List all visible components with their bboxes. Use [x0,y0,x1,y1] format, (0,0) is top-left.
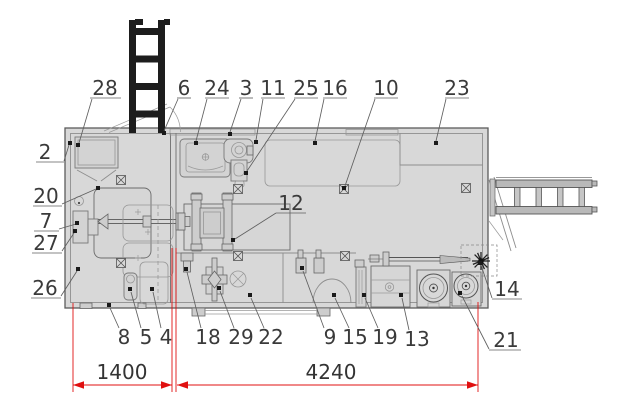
callout-label-25: 25 [293,76,318,100]
callout-dot [96,186,100,190]
callout-dot [128,287,132,291]
crossed-box-icon [462,184,471,193]
crossed-box-icon [341,252,350,261]
crossed-box-icon [117,176,126,185]
callout-dot [228,132,232,136]
callout-label-14: 14 [494,277,519,301]
callout-label-23: 23 [444,76,469,100]
crossed-box-icon [234,252,243,261]
callout-dot [162,131,166,135]
roof-ladder [129,19,170,133]
callout-label-27: 27 [33,231,58,255]
callout-dot [254,140,258,144]
dimension-value: 4240 [306,360,357,384]
callout-label-19: 19 [372,325,397,349]
callout-dot [75,221,79,225]
dimension-value: 1400 [97,360,148,384]
callout-dot [458,291,462,295]
fire-extinguisher [124,273,137,300]
crossed-box-icon [234,185,243,194]
callout-dot [76,143,80,147]
callout-label-26: 26 [32,276,57,300]
callout-dot [150,287,154,291]
callout-label-3: 3 [240,76,253,100]
callout-dot [399,293,403,297]
callout-dot [76,267,80,271]
callout-label-18: 18 [195,325,220,349]
callout-label-6: 6 [178,76,191,100]
callout-dot [313,141,317,145]
callout-label-13: 13 [404,327,429,351]
callout-dot [244,171,248,175]
callout-label-15: 15 [342,325,367,349]
callout-label-7: 7 [40,209,53,233]
callout-dot [332,293,336,297]
callout-label-21: 21 [493,328,518,352]
callout-label-29: 29 [228,325,253,349]
drawer-cabinet [371,266,410,307]
dimension-arrow-right [467,381,478,389]
callout-dot [68,141,72,145]
callout-dot [342,186,346,190]
callout-label-11: 11 [260,76,285,100]
callout-dot [217,286,221,290]
callout-label-8: 8 [118,325,131,349]
callout-dot [478,261,482,265]
callout-dot [248,293,252,297]
floor-plan-canvas: 14004240 2286243112516102320727261214218… [0,0,630,420]
grinder-machine [417,270,450,307]
callout-label-12: 12 [278,191,303,215]
dimension-arrow-left [177,381,188,389]
callout-label-28: 28 [92,76,117,100]
access-ladder [490,178,597,217]
crossed-box-icon [117,259,126,268]
callout-dot [107,303,111,307]
callout-dot [362,293,366,297]
compressor-machine [452,272,481,306]
dimension-arrow-right [161,381,172,389]
callout-dot [194,141,198,145]
callout-dot [184,267,188,271]
callout-label-20: 20 [33,184,58,208]
callout-dot [434,141,438,145]
callout-label-2: 2 [39,140,52,164]
callout-dot [300,266,304,270]
callout-label-22: 22 [258,325,283,349]
callout-leader [230,99,241,132]
callout-label-24: 24 [204,76,229,100]
callout-label-9: 9 [324,325,337,349]
callout-label-5: 5 [140,325,153,349]
callout-label-16: 16 [322,76,347,100]
dimension-arrow-left [73,381,84,389]
sink [180,139,230,177]
floor-plan-drawing: 14004240 2286243112516102320727261214218… [0,0,630,420]
callout-label-4: 4 [160,325,173,349]
callout-label-10: 10 [373,76,398,100]
callout-dot [231,238,235,242]
callout-dot [73,229,77,233]
